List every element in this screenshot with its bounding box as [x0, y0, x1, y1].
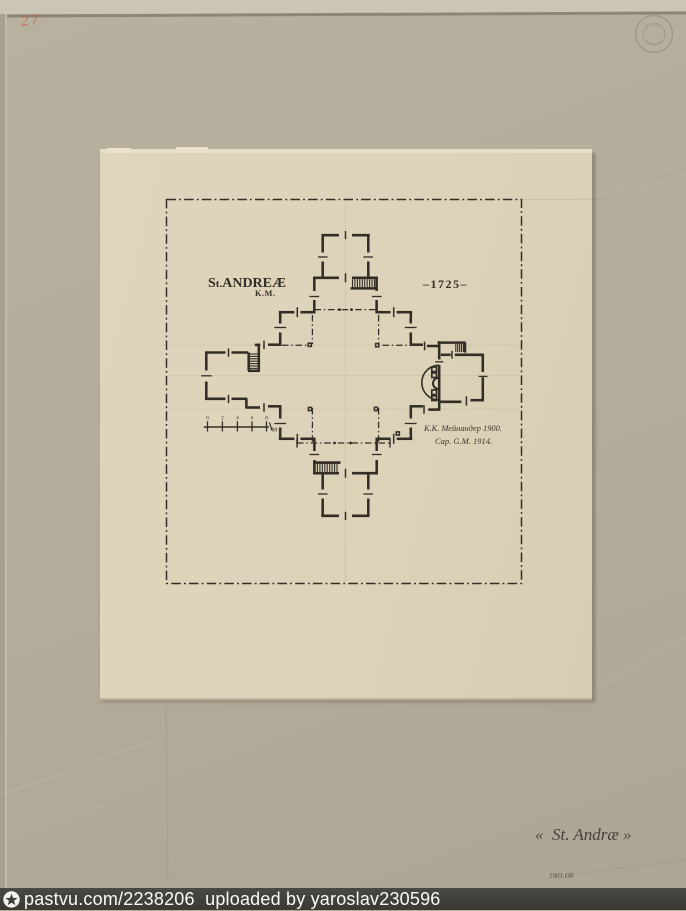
svg-text:0: 0	[206, 416, 209, 422]
svg-text:M: M	[272, 428, 278, 434]
svg-text:6: 6	[251, 416, 254, 422]
svg-text:2: 2	[221, 416, 224, 422]
svg-text:–1725–: –1725–	[422, 277, 468, 291]
svg-text:8: 8	[265, 416, 268, 422]
svg-text:Cap. G.M. 1914.: Cap. G.M. 1914.	[435, 436, 492, 446]
svg-text:К.К. Мейнандер 1900.: К.К. Мейнандер 1900.	[423, 424, 502, 433]
svg-text:K.M.: K.M.	[255, 289, 276, 298]
svg-text:4: 4	[236, 416, 239, 422]
